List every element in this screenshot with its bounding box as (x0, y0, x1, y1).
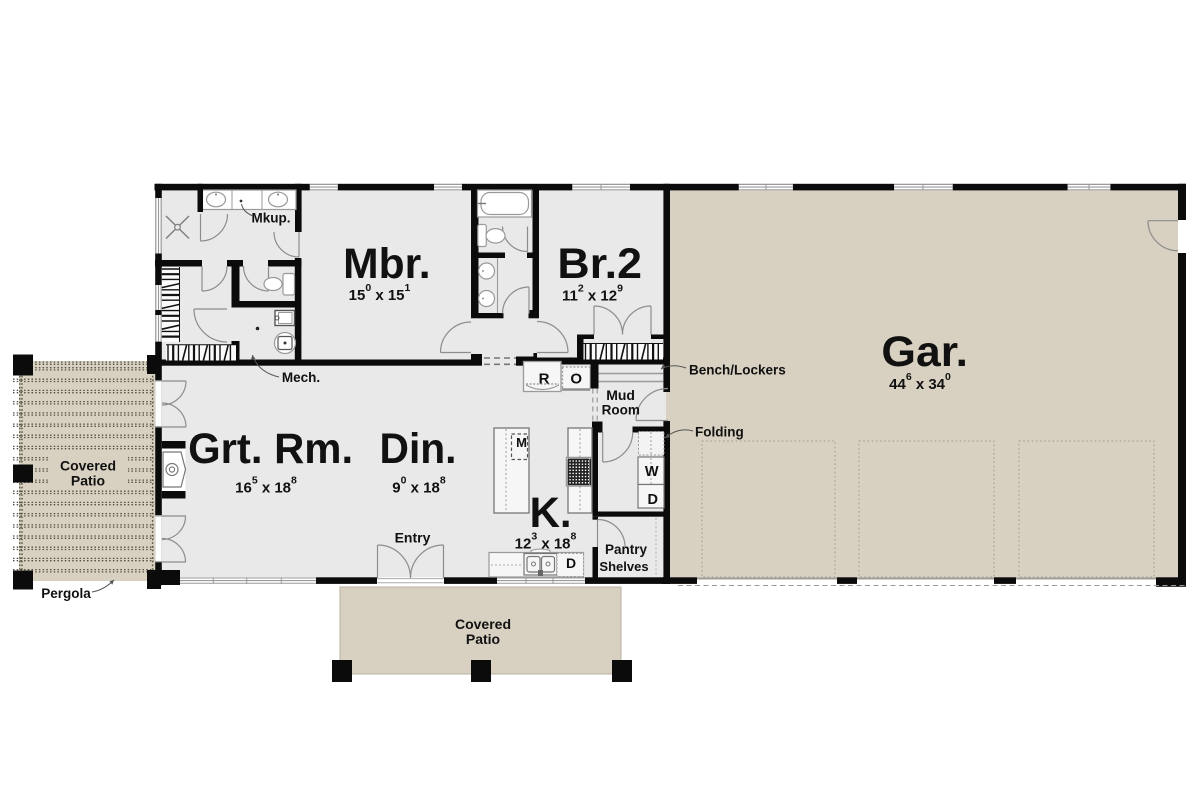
svg-text:Din.: Din. (380, 425, 457, 473)
svg-text:Gar.: Gar. (881, 328, 968, 376)
svg-text:Br.2: Br.2 (557, 240, 642, 288)
svg-text:Folding: Folding (695, 425, 744, 440)
svg-text:R: R (539, 371, 550, 388)
svg-text:Shelves: Shelves (599, 559, 648, 574)
svg-text:D: D (566, 555, 576, 571)
svg-text:Patio: Patio (71, 473, 105, 489)
svg-text:Mech.: Mech. (282, 370, 320, 385)
svg-text:Covered: Covered (455, 616, 511, 632)
svg-text:Grt. Rm.: Grt. Rm. (188, 425, 353, 473)
svg-text:Pergola: Pergola (41, 586, 91, 601)
svg-text:Mud: Mud (606, 387, 635, 403)
svg-text:Mbr.: Mbr. (343, 240, 431, 288)
svg-text:Bench/Lockers: Bench/Lockers (689, 363, 786, 378)
svg-text:Entry: Entry (395, 530, 431, 546)
svg-text:Mkup.: Mkup. (252, 211, 291, 226)
svg-text:W: W (645, 464, 659, 480)
svg-text:O: O (570, 371, 582, 388)
svg-text:Room: Room (602, 403, 640, 418)
svg-text:Patio: Patio (466, 631, 500, 647)
svg-text:M: M (516, 435, 527, 450)
svg-text:Pantry: Pantry (605, 542, 648, 557)
svg-text:Covered: Covered (60, 458, 116, 474)
svg-text:D: D (648, 492, 658, 508)
